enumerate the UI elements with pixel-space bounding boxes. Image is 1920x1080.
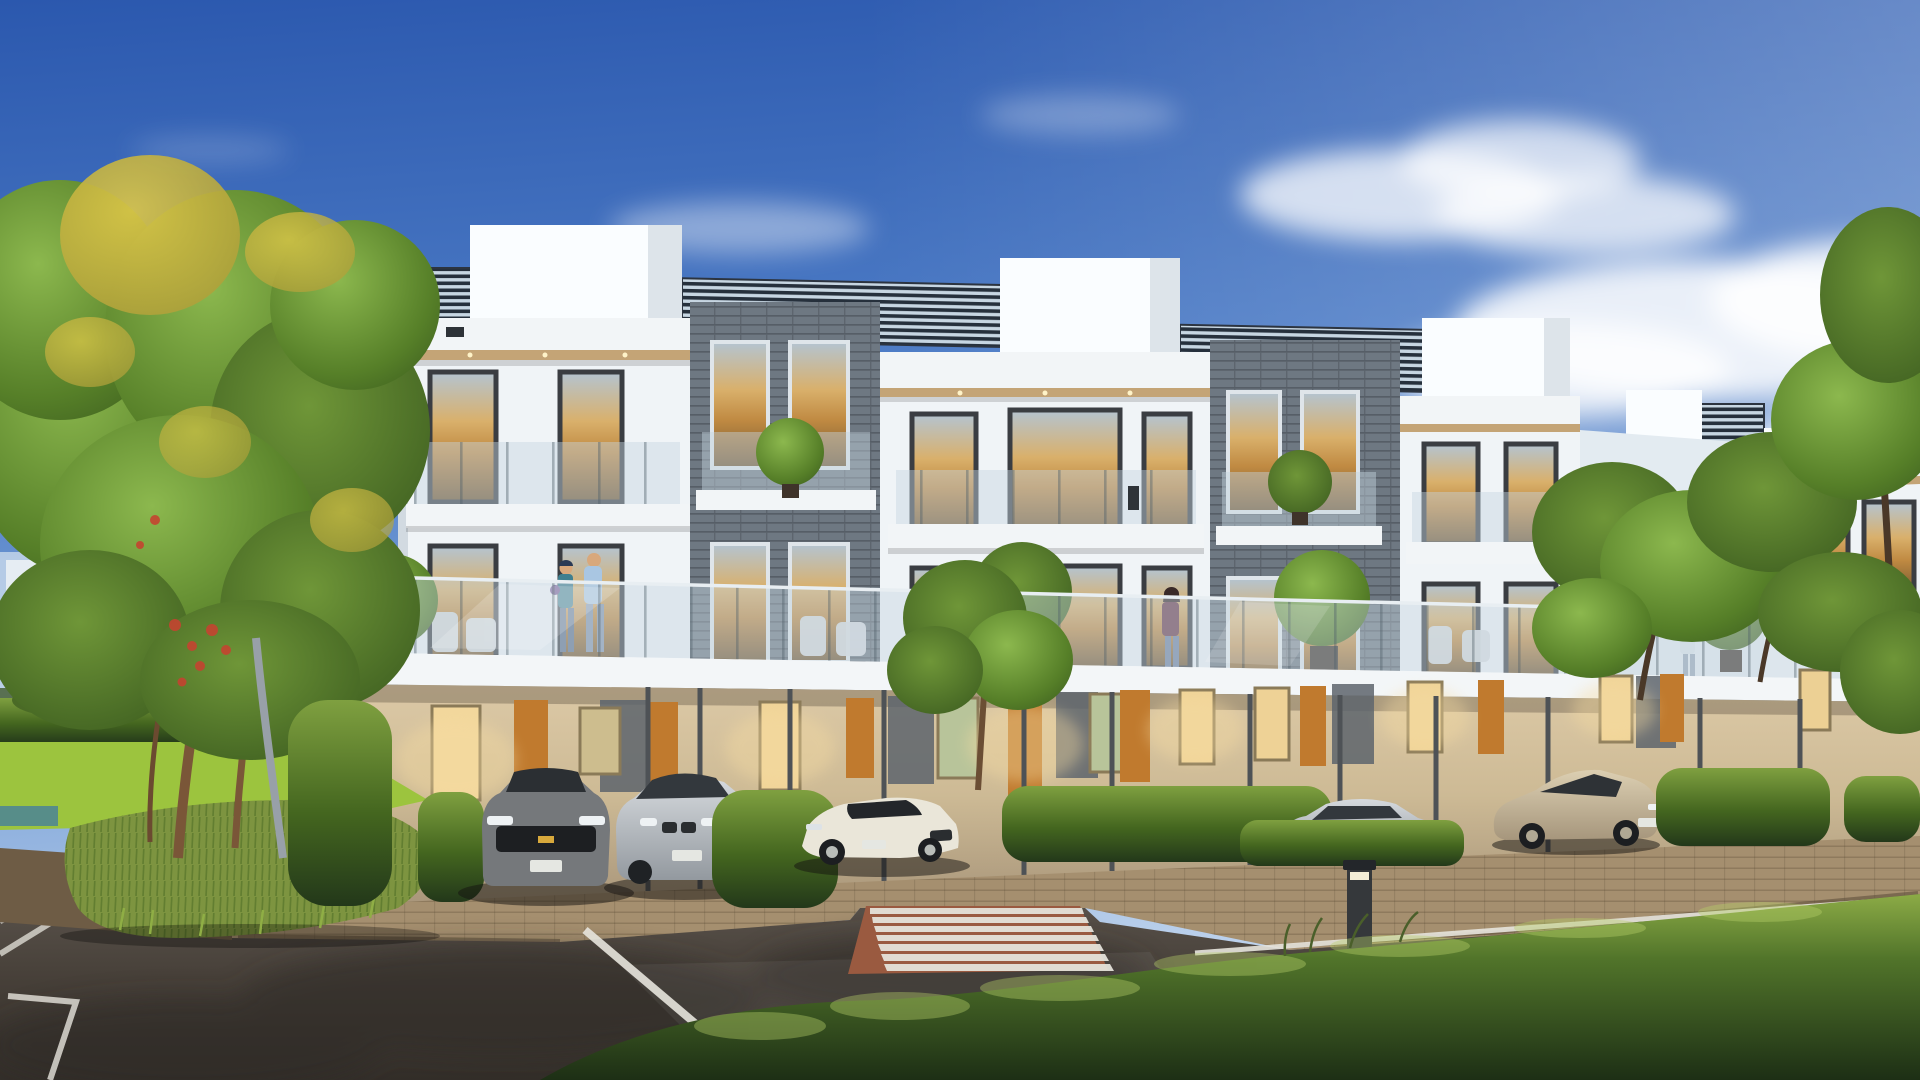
- grille-badge: [538, 836, 554, 843]
- balcony-tree: [1268, 450, 1332, 514]
- license-plate: [1638, 818, 1658, 827]
- hedge-far-right: [1844, 776, 1920, 842]
- hedge-small: [418, 792, 484, 902]
- architectural-rendering: [0, 0, 1920, 1080]
- water-glimpse: [0, 806, 58, 826]
- hedge-tall-left: [288, 700, 392, 906]
- hedge-over-car: [1240, 820, 1464, 866]
- bollard-light: [1350, 872, 1369, 880]
- wall-sconce: [1128, 486, 1139, 510]
- scene-canvas: [0, 0, 1920, 1080]
- security-camera: [446, 327, 464, 337]
- license-plate: [862, 840, 886, 849]
- license-plate: [672, 850, 702, 861]
- crosswalk: [848, 906, 1114, 974]
- hedge-right: [1656, 768, 1830, 846]
- license-plate: [530, 860, 562, 872]
- balcony-tree: [756, 418, 824, 486]
